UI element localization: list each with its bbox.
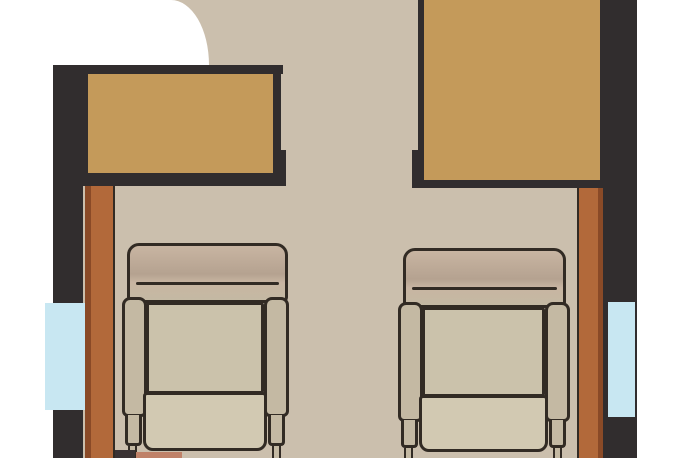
left-table [88, 74, 273, 173]
right-seat-armrest-right [545, 302, 570, 422]
floorplan-canvas [0, 0, 688, 458]
left-seat-base-right [272, 446, 281, 458]
left-seat-plinth-fragment [136, 452, 182, 458]
right-table-leg [412, 150, 418, 188]
left-sideboard [85, 184, 115, 458]
right-seat-base-right [553, 448, 562, 458]
right-sideboard [577, 186, 603, 458]
left-seat-base-fragment [115, 450, 135, 458]
right-seat-backrest-seam [412, 287, 556, 290]
left-seat-backrest-seam [136, 282, 279, 285]
right-seat-foot-right [549, 420, 566, 448]
exterior-corner [0, 0, 209, 65]
left-seat-foot-right [268, 415, 285, 446]
right-seat-backrest [403, 248, 566, 308]
left-seat-foot-left [125, 415, 142, 446]
right-seat-base-left [404, 448, 413, 458]
right-window [608, 302, 635, 417]
right-seat-cushion [422, 307, 545, 397]
right-seat-foot-left [401, 420, 418, 448]
left-window [45, 303, 85, 410]
left-seat-armrest-right [264, 297, 289, 417]
left-seat-cushion [146, 302, 264, 394]
left-seat-lower-cushion [143, 392, 267, 451]
right-seat-lower-cushion [419, 395, 548, 452]
right-table [424, 0, 600, 180]
left-table-leg [281, 150, 286, 186]
left-seat-backrest [127, 243, 288, 303]
